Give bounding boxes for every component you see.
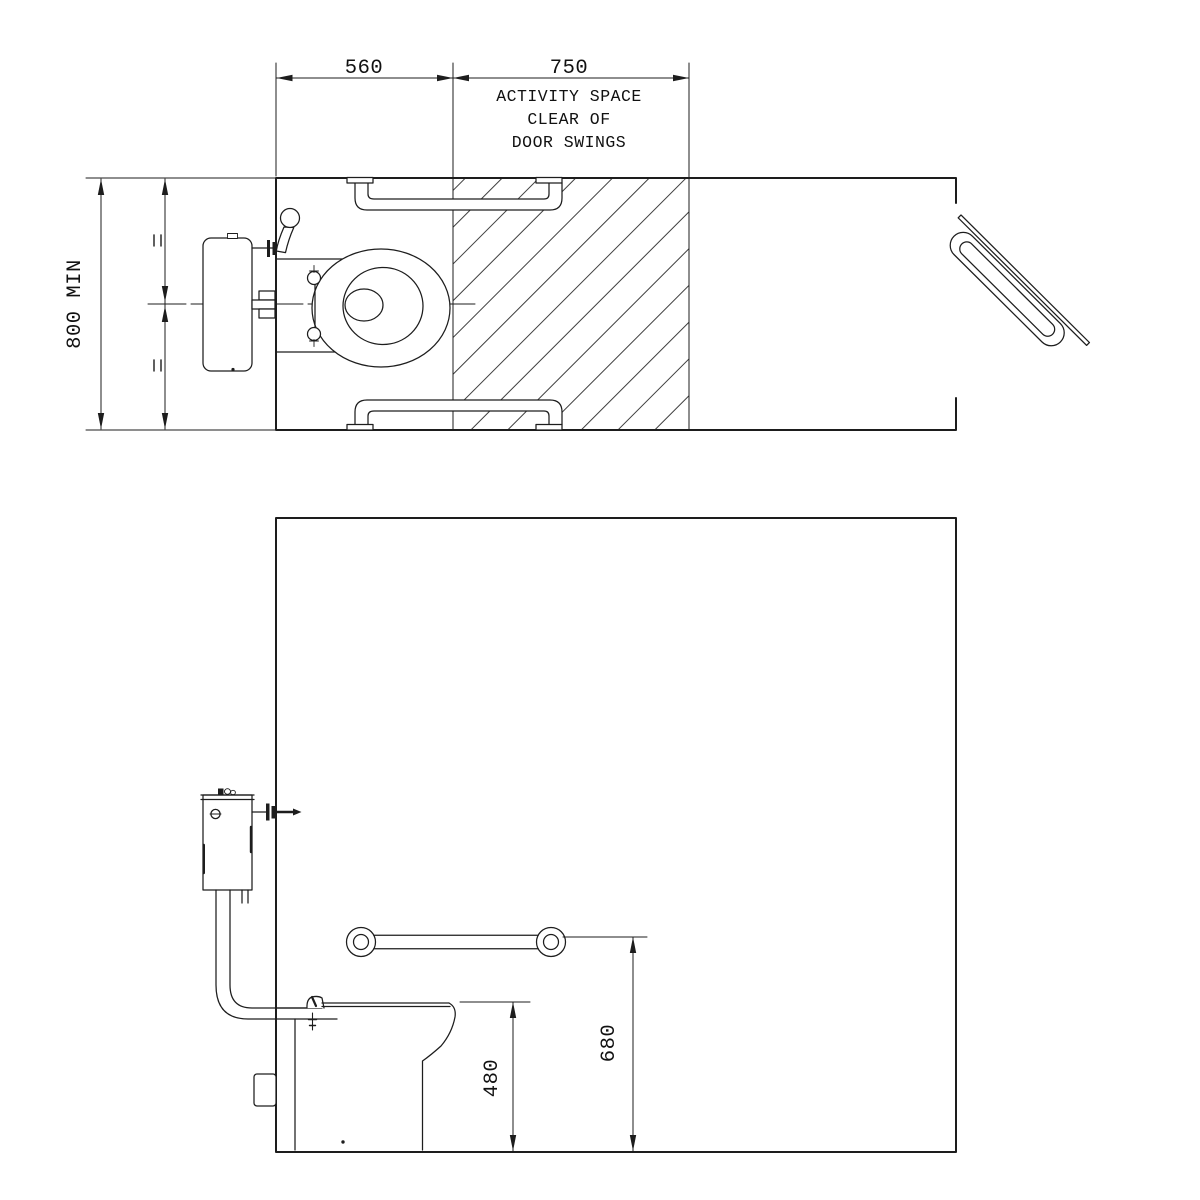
toilet-plan bbox=[203, 209, 450, 372]
technical-drawing: 560 750 ACTIVITY SPACE CLEAR OF DOOR SWI… bbox=[0, 0, 1200, 1200]
grab-rail-elevation bbox=[347, 928, 566, 957]
door bbox=[938, 215, 1090, 366]
activity-space-note: ACTIVITY SPACE CLEAR OF DOOR SWINGS bbox=[496, 87, 642, 152]
equal-mark-top bbox=[154, 235, 161, 246]
cistern-lid-screw bbox=[218, 789, 235, 796]
waste-outlet bbox=[254, 1074, 276, 1106]
activity-space-hatch bbox=[453, 178, 689, 430]
cistern-elevation bbox=[201, 789, 254, 904]
note-line-2: CLEAR OF bbox=[527, 110, 610, 129]
dimension-480: 480 bbox=[460, 1002, 530, 1151]
dim-label-680: 680 bbox=[598, 1024, 621, 1062]
door-pull-handle-icon bbox=[957, 239, 1058, 339]
toilet-bowl-plan bbox=[312, 249, 450, 367]
note-line-3: DOOR SWINGS bbox=[512, 133, 626, 152]
door-pull-handle-outer bbox=[945, 227, 1070, 351]
dim-label-800-min: 800 MIN bbox=[64, 259, 87, 349]
elevation-view: 480 680 bbox=[201, 518, 956, 1152]
equal-mark-bottom bbox=[154, 360, 161, 371]
note-line-1: ACTIVITY SPACE bbox=[496, 87, 642, 106]
door-leaf bbox=[958, 215, 1089, 345]
flush-pipe-coupling-plan bbox=[252, 291, 275, 318]
water-inlet-stub bbox=[242, 890, 248, 903]
pan-fixing-screw bbox=[309, 1013, 317, 1030]
dimension-680: 680 bbox=[563, 937, 647, 1151]
dim-label-560: 560 bbox=[345, 57, 383, 80]
pan-front-profile bbox=[423, 1003, 456, 1150]
cistern-plan bbox=[203, 234, 252, 372]
plan-view: 560 750 ACTIVITY SPACE CLEAR OF DOOR SWI… bbox=[64, 57, 1089, 430]
dim-label-750: 750 bbox=[550, 57, 588, 80]
dim-label-480: 480 bbox=[481, 1059, 504, 1097]
